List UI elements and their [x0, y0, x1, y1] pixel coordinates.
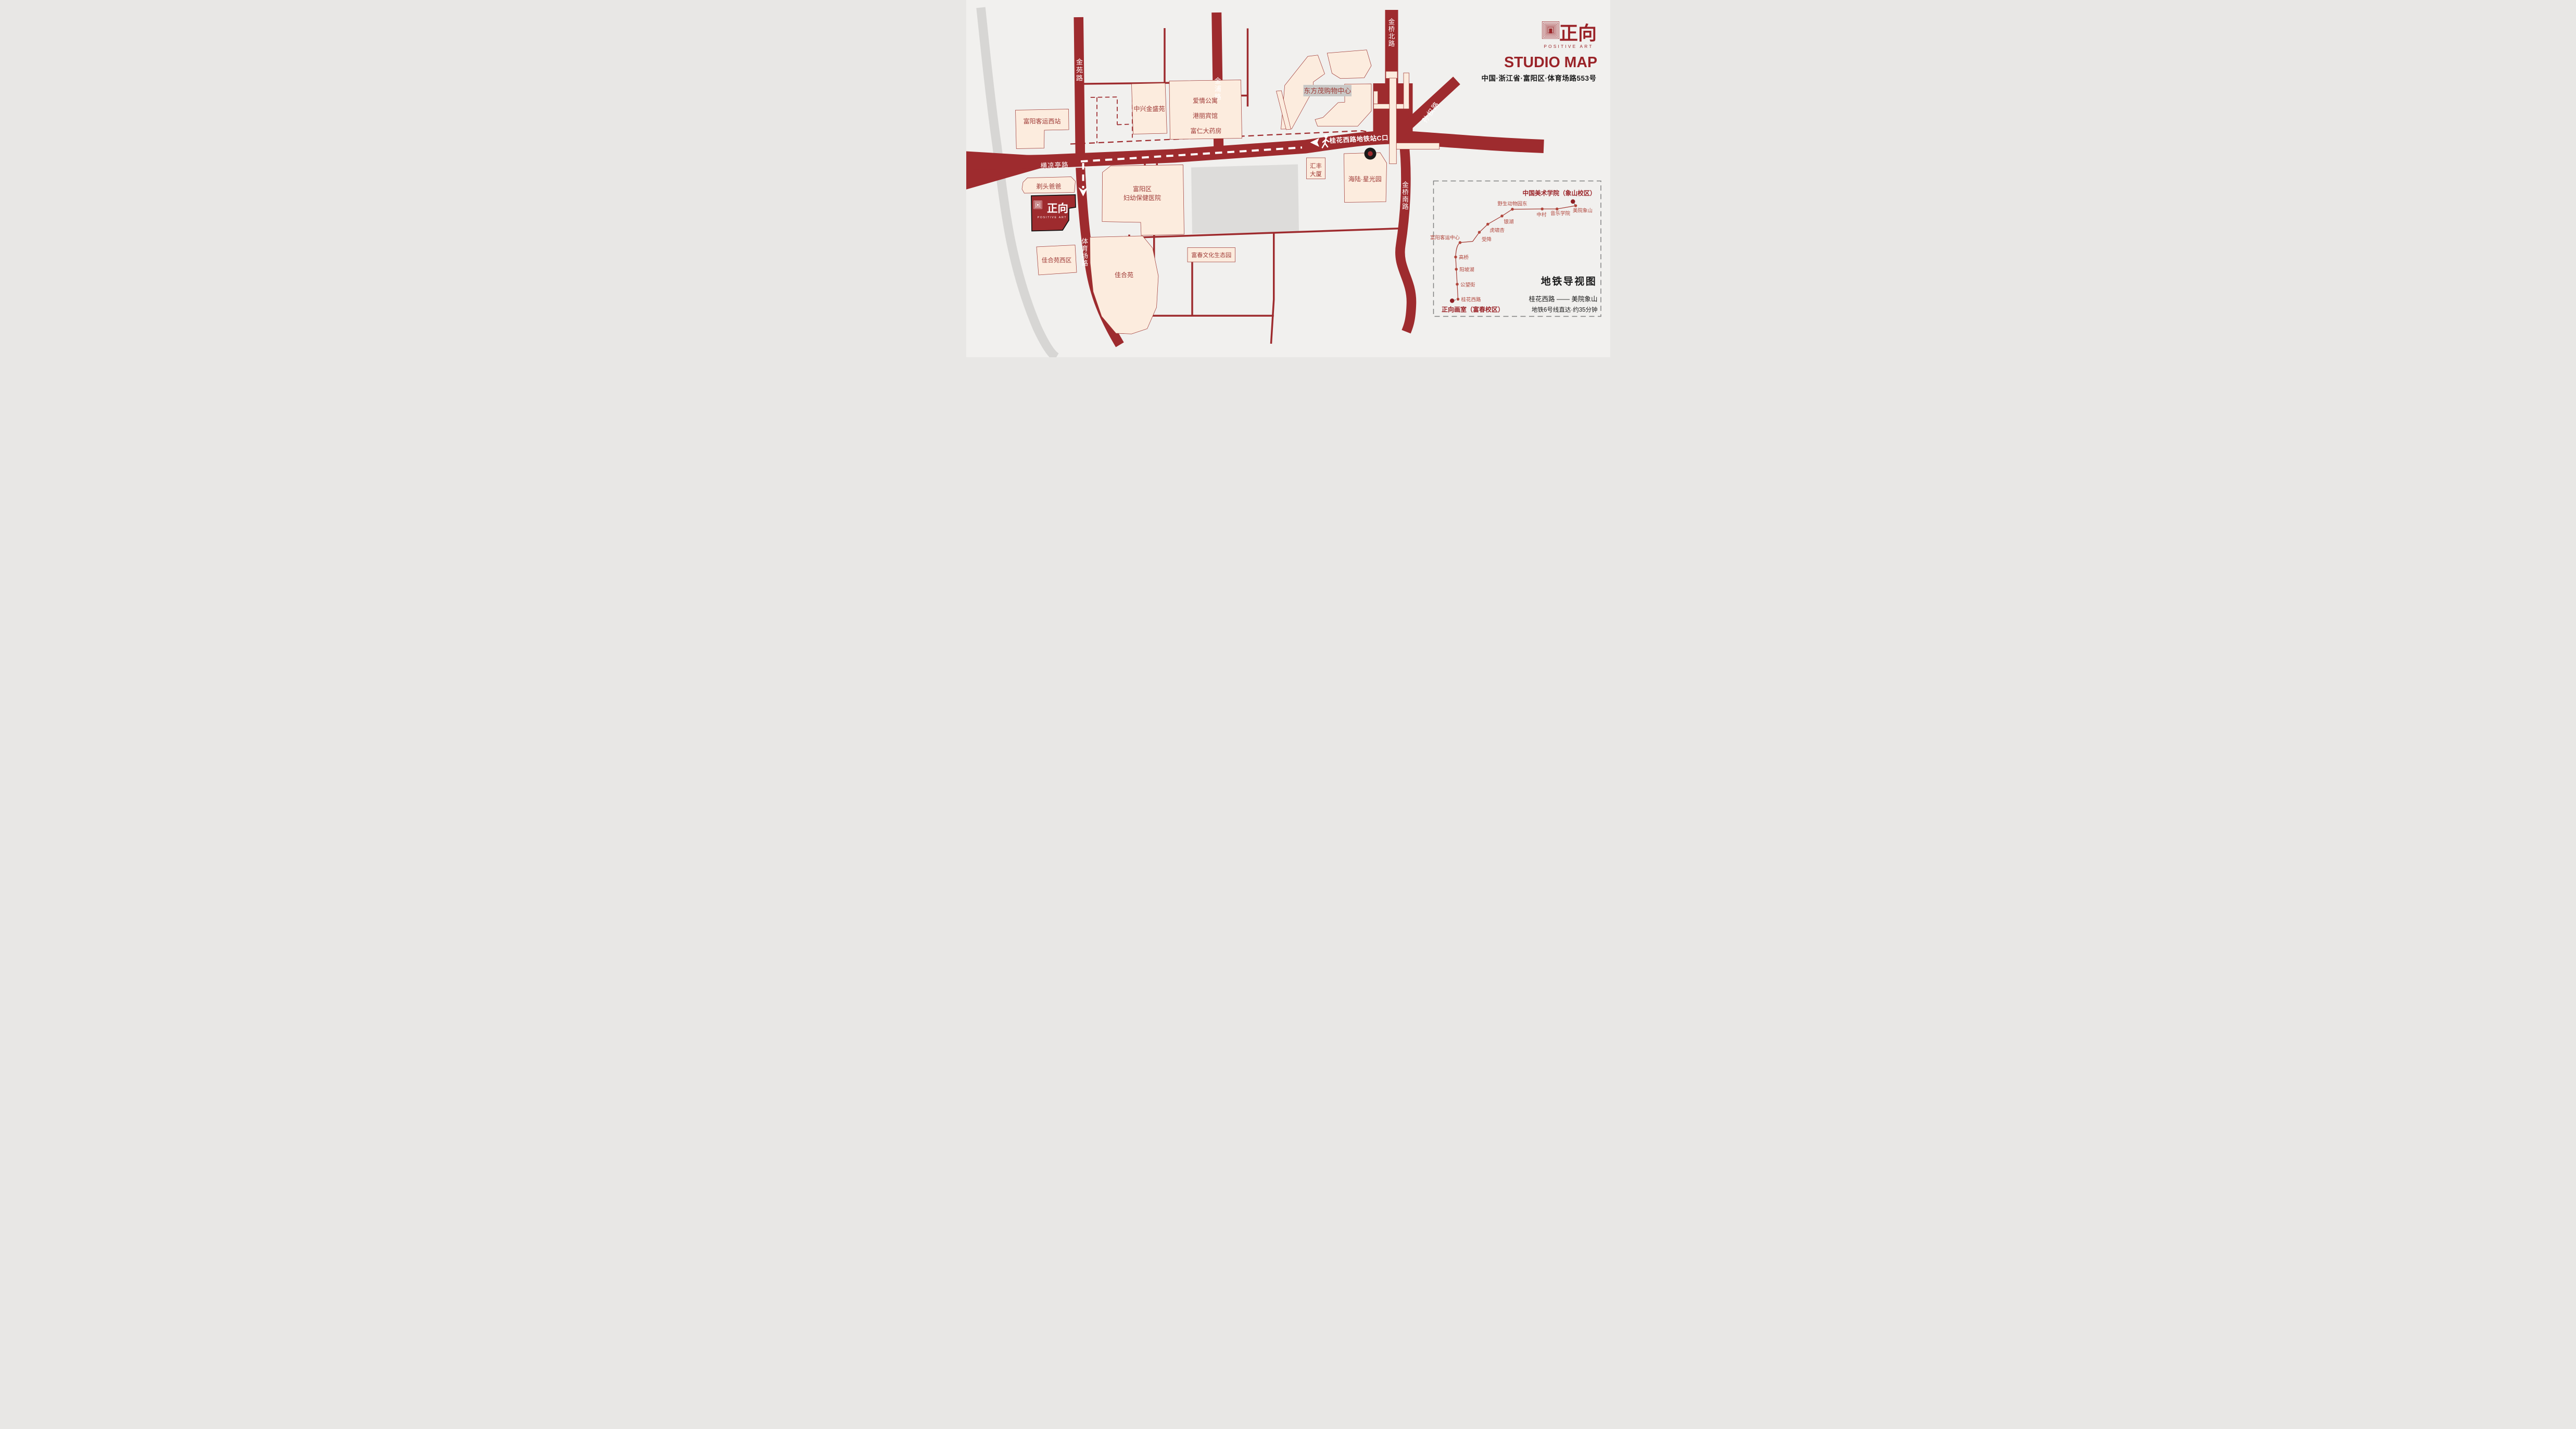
station-yinyuexueyuan: 音乐学院: [1550, 210, 1570, 217]
label-hailu: 海陆·星光园: [1348, 175, 1381, 183]
label-apartment: 爱情公寓: [1192, 97, 1217, 105]
label-road-jinqiao-south: 金桥南路: [1401, 181, 1408, 210]
station-yangpohu: 阳坡湖: [1459, 267, 1474, 273]
legend-route: 桂花西路 —— 美院象山: [1529, 295, 1597, 303]
legend-destination: 中国美术学院（象山校区）: [1522, 190, 1596, 197]
station-yinhu: 银湖: [1504, 219, 1513, 225]
header-address: 中国·浙江省·富阳区·体育场路553号: [1481, 74, 1596, 82]
label-hospital-1: 富阳区: [1132, 185, 1151, 193]
station-meiyuanxiangshan: 美院象山: [1573, 208, 1593, 214]
label-road-hengliangting: 横凉亭路: [1040, 161, 1069, 170]
legend-note: 地铁6号线直达·约35分钟: [1531, 306, 1597, 314]
label-road-tiyuchang: 体育场路: [1080, 238, 1088, 267]
metro-exit-marker: [1364, 148, 1376, 160]
studio-logo-icon: [1033, 201, 1042, 209]
station-zhongcun: 中村: [1536, 212, 1547, 218]
label-eco-park: 富春文化生态园: [1191, 252, 1231, 259]
page-title: STUDIO MAP: [1504, 54, 1597, 71]
brand-name-en: POSITIVE ART: [1544, 44, 1593, 49]
legend-origin: 正向画室（富春校区）: [1442, 306, 1504, 314]
label-jiaheyuan-west: 佳合苑西区: [1041, 257, 1071, 264]
label-huifeng-1: 汇丰: [1310, 163, 1322, 170]
label-barber: 剃头爸爸: [1036, 183, 1061, 190]
map-canvas: 金苑路 金浦路 金桥北路 金桥南路 体育场路 横凉亭路 孙权路 桂花西路地铁站C…: [966, 0, 1610, 357]
station-yeshengdongwuyuandong: 野生动物园东: [1497, 201, 1527, 207]
station-guihuaxilu: 桂花西路: [1461, 297, 1481, 303]
studio-logo-cn: 正向: [1047, 202, 1068, 215]
label-huifeng-2: 大厦: [1310, 170, 1322, 178]
studio-map-poster: 金苑路 金浦路 金桥北路 金桥南路 体育场路 横凉亭路 孙权路 桂花西路地铁站C…: [966, 0, 1610, 357]
label-hospital-2: 妇幼保健医院: [1123, 194, 1160, 202]
gray-block: [1191, 165, 1299, 234]
studio-logo-en: POSITIVE ART: [1037, 216, 1067, 219]
label-road-jinqiao-north: 金桥北路: [1387, 18, 1394, 47]
station-huxiaoxing: 虎啸杏: [1489, 228, 1505, 234]
building-mall-north: [1327, 50, 1371, 79]
label-hotel: 港丽宾馆: [1192, 112, 1217, 120]
station-gongwangjie: 公望街: [1460, 282, 1475, 288]
label-zhongxing: 中兴金盛苑: [1133, 105, 1165, 112]
brand-name-cn: 正向: [1559, 22, 1596, 44]
legend-title: 地铁导视图: [1540, 275, 1597, 287]
legend-terminal-origin-dot: [1450, 298, 1455, 303]
station-fuyangkeyunzhongxin: 富阳客运中心: [1430, 235, 1460, 241]
station-shoujiang: 受降: [1482, 236, 1492, 243]
label-road-jinyuan: 金苑路: [1075, 58, 1083, 82]
legend-terminal-destination-dot: [1571, 199, 1575, 204]
label-jiaheyuan: 佳合苑: [1114, 271, 1133, 279]
label-mall: 东方茂购物中心: [1304, 87, 1351, 95]
label-bus-west-station: 富阳客运西站: [1023, 117, 1060, 125]
brand-logo-icon: [1542, 22, 1559, 39]
mall-label-chip: 东方茂购物中心: [1303, 85, 1352, 96]
station-gaoqiao: 高桥: [1459, 255, 1469, 261]
road-jinyuan: [1078, 17, 1080, 158]
label-pharmacy: 富仁大药房: [1190, 127, 1221, 135]
